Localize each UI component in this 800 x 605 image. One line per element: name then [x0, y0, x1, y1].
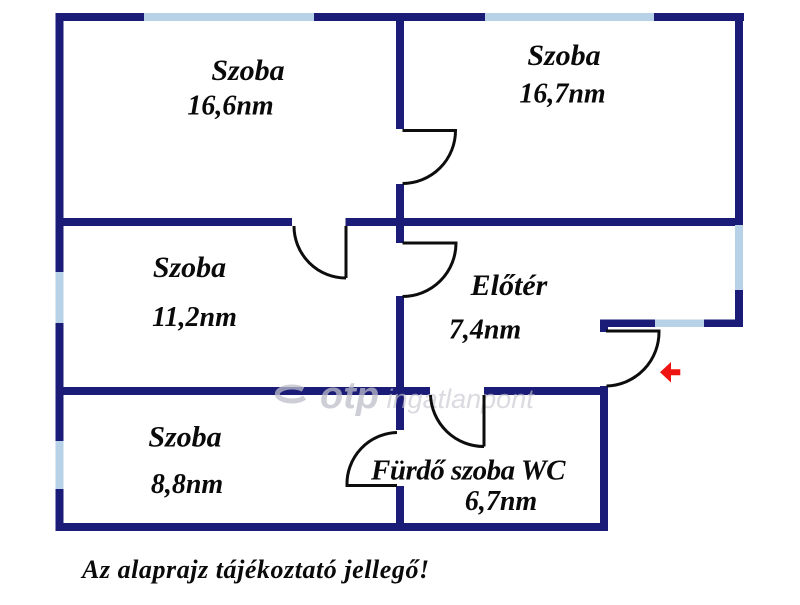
svg-text:7,4nm: 7,4nm	[449, 315, 521, 346]
svg-text:Előtér: Előtér	[470, 269, 548, 302]
svg-text:Szoba: Szoba	[211, 54, 284, 87]
svg-text:Szoba: Szoba	[148, 421, 221, 454]
svg-text:Szoba: Szoba	[153, 251, 226, 284]
svg-text:8,8nm: 8,8nm	[151, 469, 223, 500]
svg-text:Fürdő szoba WC: Fürdő szoba WC	[370, 455, 566, 487]
svg-text:11,2nm: 11,2nm	[152, 302, 237, 333]
svg-text:Az alaprajz tájékoztató jelleg: Az alaprajz tájékoztató jellegő!	[80, 555, 430, 584]
svg-text:6,7nm: 6,7nm	[465, 486, 537, 517]
svg-text:16,6nm: 16,6nm	[187, 91, 273, 122]
svg-text:16,7nm: 16,7nm	[519, 79, 605, 110]
svg-text:Szoba: Szoba	[527, 39, 600, 72]
